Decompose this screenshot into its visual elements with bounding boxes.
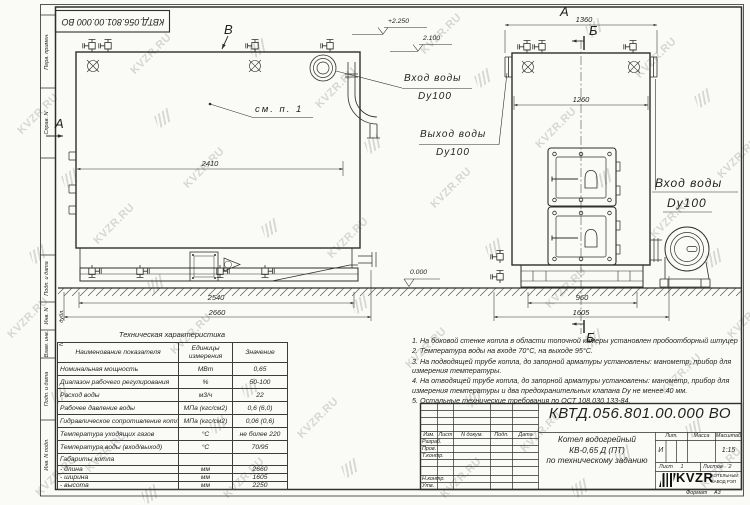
note-item: 2. Температура воды на входе 70°С, на вы…	[412, 346, 744, 355]
note-item: 4. На отводящей трубе котла, до запорной…	[412, 376, 744, 395]
ground-line	[58, 288, 741, 296]
drawing-sheet: { "watermark": {"text": "KVZR.RU"}, "fra…	[0, 0, 750, 500]
row-utv: Утв.	[422, 484, 434, 489]
table-row: Температура уходящих газов°Сне более 220	[58, 428, 288, 441]
stamp-perv-primen: Перв. примен.	[40, 15, 55, 88]
col-izm: Изм.	[421, 433, 438, 438]
scale-header: Масштаб	[716, 434, 742, 439]
lit-header: Лит.	[656, 434, 688, 439]
sheet-label: Лист	[659, 465, 673, 470]
table-row: Гидравлическое сопротивление котлаМПа (к…	[58, 415, 288, 428]
kvzr-logo-text: KVZR	[676, 471, 713, 484]
table-row: Температура воды (вход/выход)°С70/95	[58, 441, 288, 454]
top-designation: КВТД.056.801.00.000 ВО	[57, 13, 169, 30]
dimension-1360: 1360	[576, 16, 593, 24]
tech-table-title: Техническая характеристика	[57, 331, 287, 339]
elevation-2100: 2.100	[423, 36, 440, 43]
lit-value: И	[656, 447, 667, 454]
water-inlet-right-dn: Dy100	[667, 197, 707, 209]
row-nkontr: Н.контр.	[422, 477, 445, 482]
col-units: Единицы измерения	[179, 343, 233, 363]
tech-table-header: Наименование показателя Единицы измерени…	[58, 343, 288, 363]
col-data: Дата	[513, 433, 539, 438]
table-row: - высотамм2250	[58, 482, 288, 490]
water-outlet-label: Выход воды	[420, 130, 486, 140]
scale-value: 1:15	[716, 447, 742, 454]
product-name-line2: КВ-0,65 Д (ПТ)	[541, 447, 653, 455]
row-razrab: Разраб.	[422, 440, 442, 445]
dimension-2410: 2410	[202, 160, 219, 168]
title-block-designation: КВТД.056.801.00.000 ВО	[540, 406, 740, 421]
water-outlet-dn: Dy100	[436, 148, 470, 158]
table-row: Диапазон рабочего регулирования%50-100	[58, 376, 288, 389]
view-label-a-right: А	[560, 5, 569, 18]
stamp-inv-dubl: Инв. N дубл.	[40, 302, 55, 330]
product-name-line3: по техническому заданию	[541, 457, 653, 465]
col-value: Значение	[233, 343, 288, 363]
table-row: Расход водым3/ч22	[58, 389, 288, 402]
col-podp: Подп.	[491, 433, 513, 438]
table-row: - ширинамм1605	[58, 474, 288, 482]
elevation-marks	[352, 28, 507, 287]
elevation-0000: 0.000	[410, 270, 427, 277]
col-list: Лист	[438, 433, 454, 438]
col-docum: N докум.	[454, 433, 491, 438]
format-label: Формат	[686, 491, 707, 496]
notes-list: 1. На боковой стенке котла в области топ…	[412, 336, 744, 407]
product-name-line1: Котел водогрейный	[541, 436, 653, 444]
table-row: Габариты котла	[58, 454, 288, 466]
table-row: - длинамм2660	[58, 466, 288, 474]
stamp-podp-data-1: Подп. и дата	[40, 255, 55, 302]
water-inlet-right-label: Вход воды	[655, 177, 722, 189]
dimension-2660: 2660	[209, 309, 226, 317]
sheets-value: 2	[724, 465, 736, 470]
dimension-960: 960	[576, 294, 589, 302]
tech-table: Наименование показателя Единицы измерени…	[57, 342, 288, 490]
stamp-vzam-inv: Взам. инв. N	[40, 330, 55, 358]
view-label-v: В	[224, 23, 233, 36]
water-inlet-label: Вход воды	[404, 74, 462, 84]
note-item: 1. На боковой стенке котла в области топ…	[412, 336, 744, 345]
format-value: А3	[714, 491, 721, 496]
water-inlet-dn: Dy100	[418, 92, 452, 102]
company-line2: ЗАВОД РЭП	[711, 480, 736, 484]
row-prov: Пров.	[422, 447, 436, 452]
section-label-b-top: Б	[589, 24, 597, 37]
note-item: 3. На подводящей трубе котла, до запорно…	[412, 357, 744, 376]
stamp-inv-podl: Инв. N подл.	[40, 420, 55, 489]
elevation-2250: +2.250	[388, 19, 409, 26]
table-row: Номинальная мощностьМВт0,65	[58, 363, 288, 376]
dimension-1260: 1260	[573, 96, 590, 104]
callout-see-note1: см. п. 1	[255, 105, 303, 115]
section-label-a-left: А	[55, 117, 64, 130]
stamp-podp-data-2: Подп. и дата	[40, 358, 55, 420]
stamp-sprav-n: Справ. N	[40, 88, 55, 158]
row-tkontr: Т.контр.	[422, 454, 444, 459]
mass-header: Масса	[688, 434, 716, 439]
company-line1: КОТЕЛЬНЫЙ	[711, 474, 739, 478]
dimension-2540: 2540	[208, 294, 225, 302]
dimension-1605: 1605	[573, 309, 590, 317]
table-row: Рабочее давление водыМПа (кгс/см2)0,6 (6…	[58, 402, 288, 415]
col-name: Наименование показателя	[58, 343, 179, 363]
